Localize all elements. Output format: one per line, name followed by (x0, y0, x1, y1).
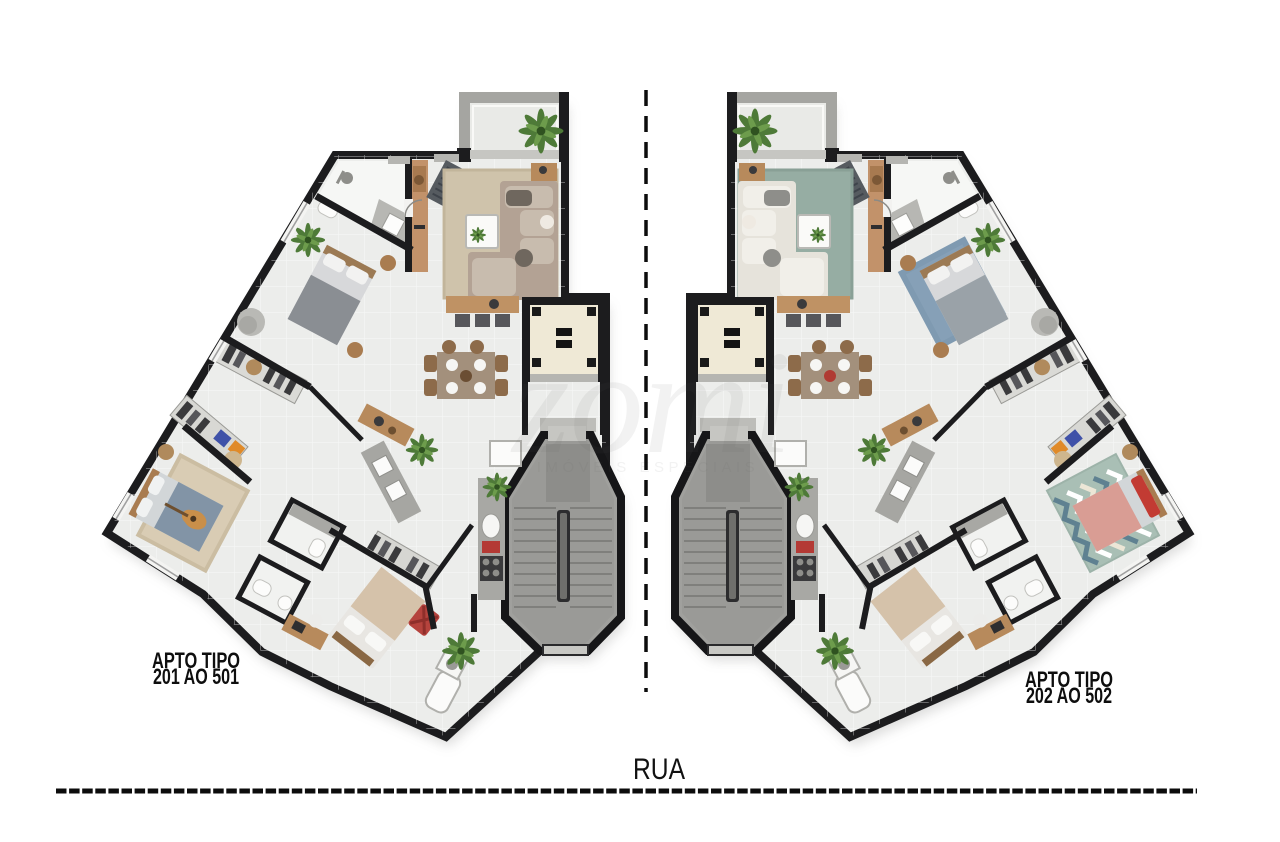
svg-text:RUA: RUA (633, 753, 685, 786)
svg-text:201 AO 501: 201 AO 501 (153, 664, 239, 689)
svg-text:202 AO 502: 202 AO 502 (1026, 683, 1112, 708)
svg-text:IMÓVEIS ESPECIAIS: IMÓVEIS ESPECIAIS (537, 459, 759, 476)
